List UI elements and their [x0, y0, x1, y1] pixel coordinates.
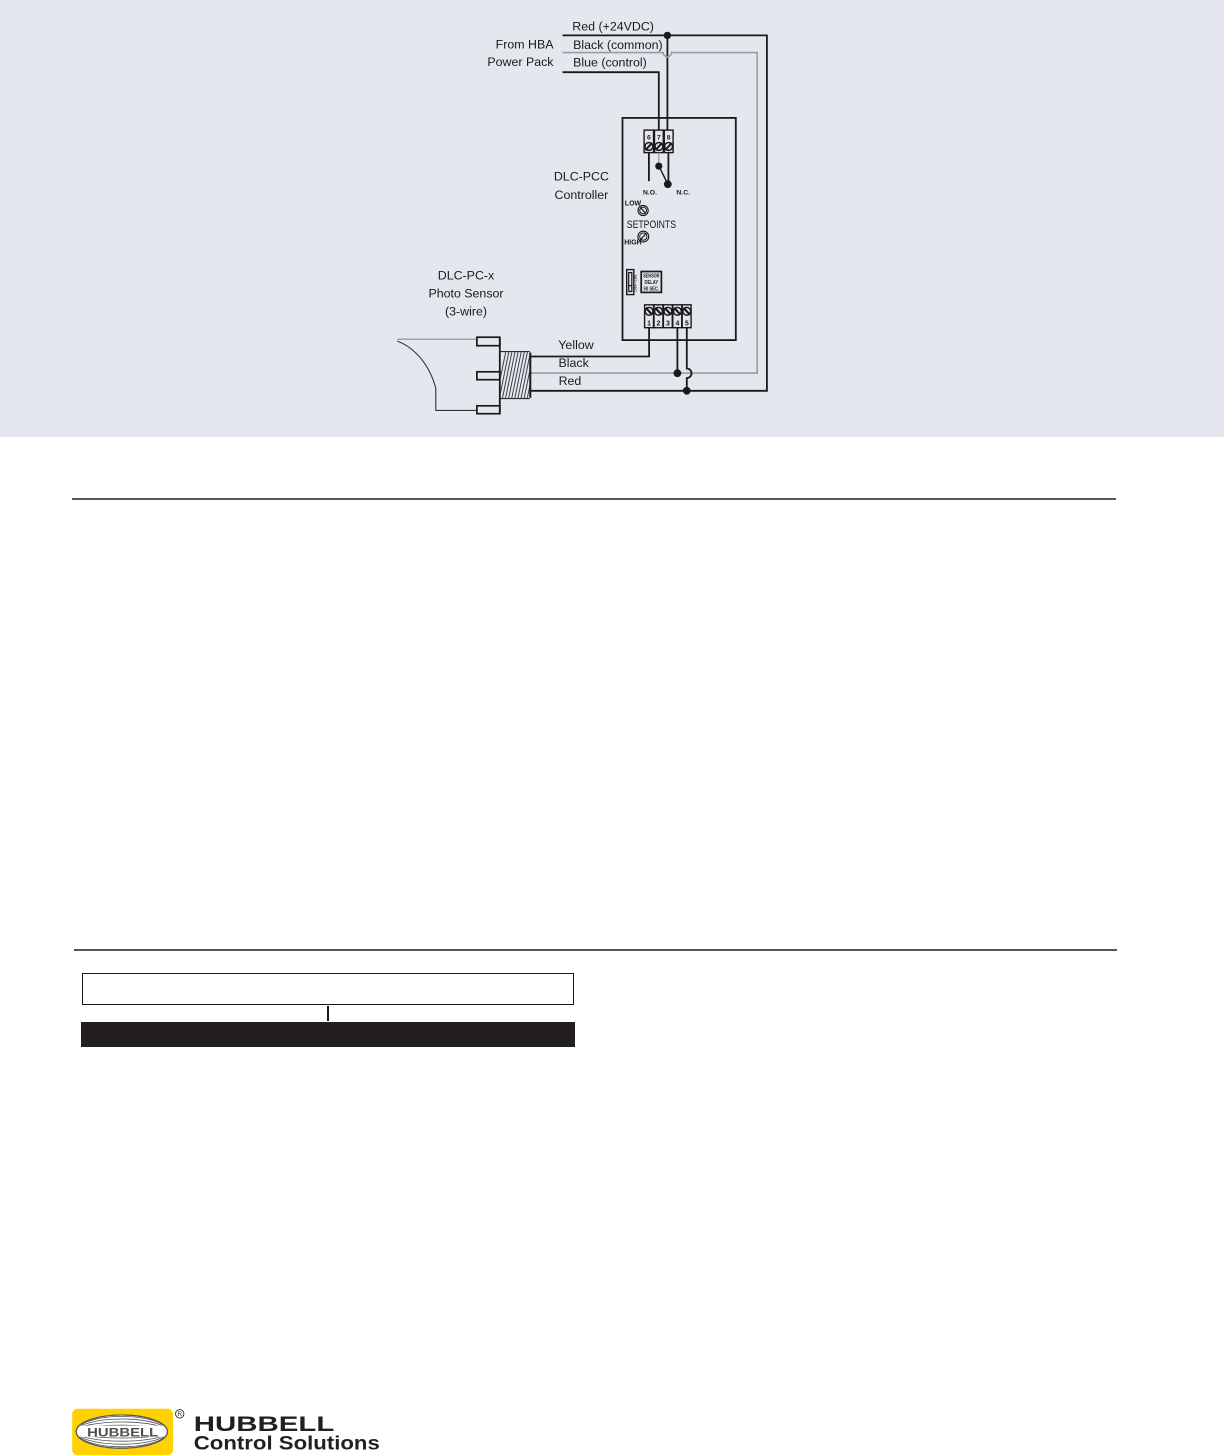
svg-text:HIGH: HIGH: [624, 239, 642, 246]
svg-text:R: R: [177, 1411, 182, 1418]
svg-text:Blue (control): Blue (control): [573, 56, 647, 70]
svg-text:2: 2: [657, 320, 661, 327]
svg-text:Black (common): Black (common): [573, 38, 663, 52]
svg-text:DLC-PCC: DLC-PCC: [554, 170, 609, 184]
svg-text:8: 8: [667, 134, 671, 141]
svg-text:Photo Sensor: Photo Sensor: [428, 287, 503, 301]
svg-text:Red (+24VDC): Red (+24VDC): [572, 20, 654, 34]
svg-text:Control Solutions: Control Solutions: [194, 1432, 380, 1454]
svg-text:LOW: LOW: [625, 200, 642, 207]
svg-text:Controller: Controller: [555, 188, 609, 202]
svg-text:7: 7: [657, 134, 661, 141]
svg-text:6: 6: [647, 134, 651, 141]
svg-text:SETPOINTS: SETPOINTS: [627, 219, 676, 231]
svg-text:DELAY: DELAY: [645, 280, 659, 286]
svg-text:HUBBELL: HUBBELL: [87, 1426, 158, 1440]
svg-text:(3-wire): (3-wire): [445, 305, 487, 319]
svg-text:N.O.: N.O.: [643, 190, 657, 197]
svg-text:SENSOR: SENSOR: [643, 274, 660, 280]
svg-text:OFF-ON: OFF-ON: [633, 275, 638, 292]
svg-text:5: 5: [685, 320, 689, 327]
svg-text:Yellow: Yellow: [558, 338, 593, 352]
svg-text:50 SEC.: 50 SEC.: [644, 286, 660, 292]
svg-text:N.C.: N.C.: [676, 190, 690, 197]
svg-text:Red: Red: [559, 374, 582, 388]
svg-text:3: 3: [666, 320, 670, 327]
svg-text:4: 4: [675, 320, 679, 327]
svg-text:1: 1: [647, 320, 651, 327]
svg-text:DLC-PC-x: DLC-PC-x: [438, 269, 495, 283]
svg-text:Black: Black: [559, 356, 590, 370]
svg-text:From HBA: From HBA: [496, 38, 555, 52]
svg-text:Power Pack: Power Pack: [487, 55, 554, 69]
